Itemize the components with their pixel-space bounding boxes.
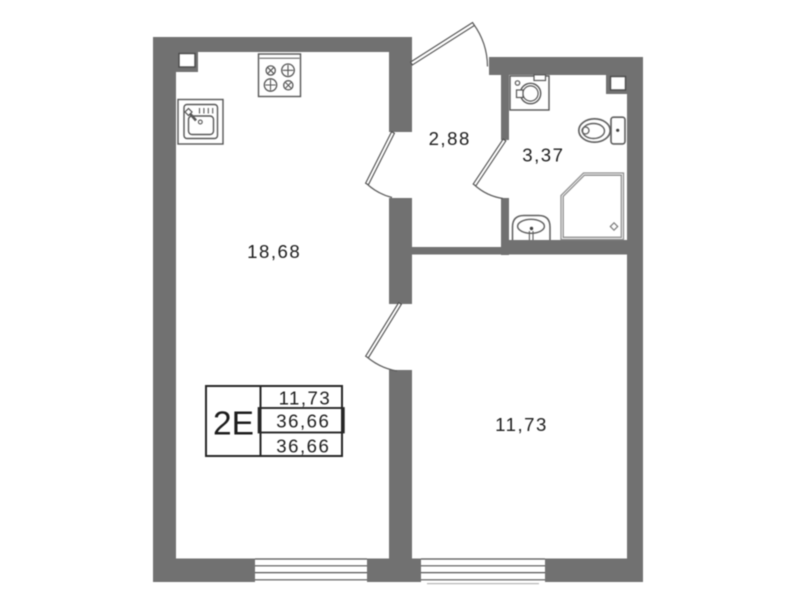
svg-text:18,68: 18,68 [247, 241, 301, 262]
svg-text:3,37: 3,37 [522, 145, 564, 166]
svg-text:11,73: 11,73 [495, 414, 548, 435]
svg-text:36,66: 36,66 [276, 436, 330, 457]
svg-text:2,88: 2,88 [429, 128, 471, 149]
svg-text:36,66: 36,66 [276, 411, 330, 432]
svg-text:11,73: 11,73 [279, 388, 332, 409]
svg-text:2E: 2E [213, 406, 254, 443]
